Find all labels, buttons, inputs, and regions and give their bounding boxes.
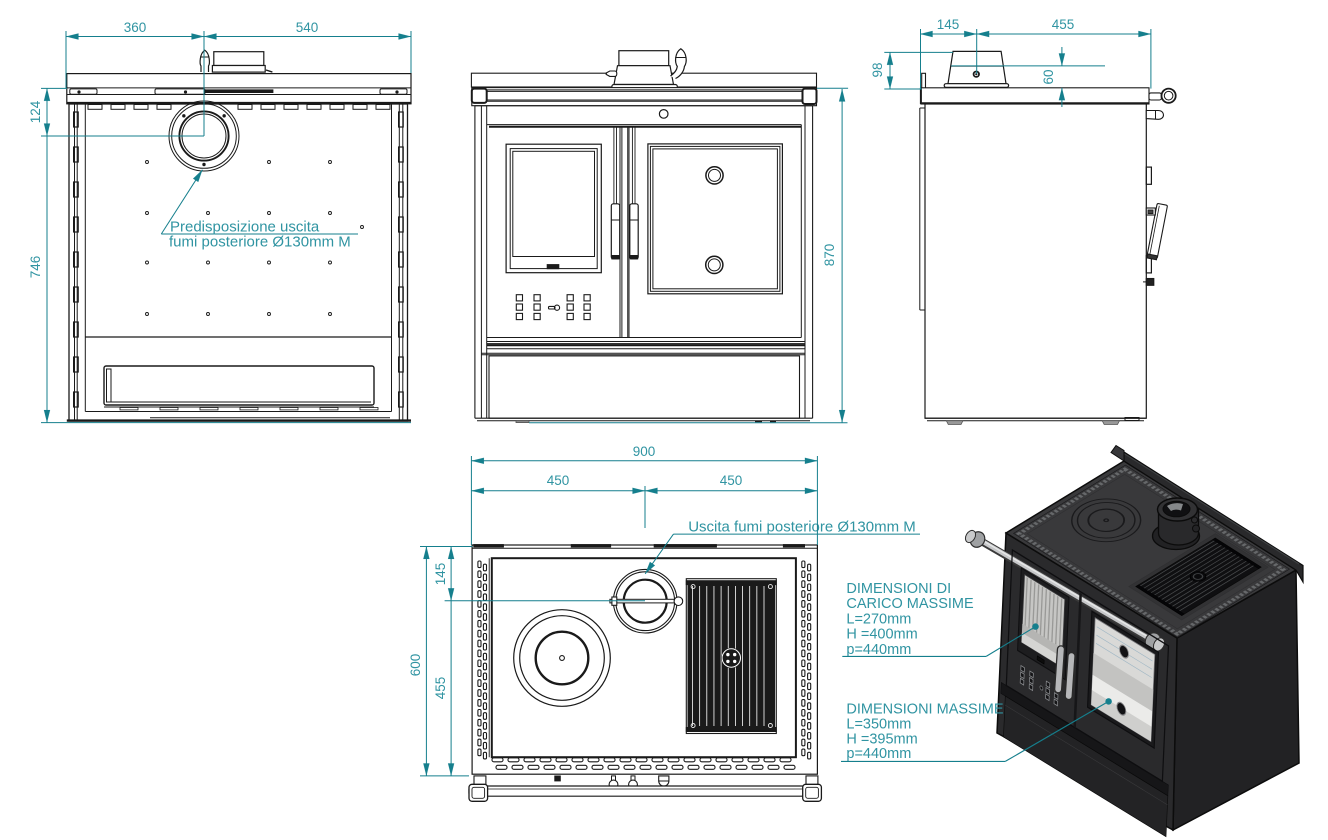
svg-text:450: 450 xyxy=(720,473,743,488)
svg-text:DIMENSIONI DI: DIMENSIONI DI xyxy=(846,581,951,597)
svg-text:p=440mm: p=440mm xyxy=(846,746,911,762)
svg-text:455: 455 xyxy=(1052,17,1075,32)
svg-text:900: 900 xyxy=(633,444,656,459)
svg-text:600: 600 xyxy=(408,654,423,677)
svg-text:98: 98 xyxy=(870,62,885,77)
svg-text:360: 360 xyxy=(124,20,147,35)
svg-text:450: 450 xyxy=(547,473,570,488)
svg-text:L=270mm: L=270mm xyxy=(846,611,911,627)
svg-text:CARICO MASSIME: CARICO MASSIME xyxy=(846,596,974,612)
svg-text:L=350mm: L=350mm xyxy=(846,717,911,733)
svg-text:p=440mm: p=440mm xyxy=(846,642,911,658)
svg-text:fumi posteriore Ø130mm M: fumi posteriore Ø130mm M xyxy=(169,234,351,251)
svg-text:540: 540 xyxy=(296,20,319,35)
svg-text:746: 746 xyxy=(28,256,43,279)
svg-text:H =400mm: H =400mm xyxy=(846,627,917,643)
svg-text:60: 60 xyxy=(1041,69,1056,84)
svg-text:455: 455 xyxy=(433,677,448,700)
svg-text:145: 145 xyxy=(937,17,960,32)
svg-text:DIMENSIONI MASSIME: DIMENSIONI MASSIME xyxy=(846,701,1003,717)
svg-text:870: 870 xyxy=(822,244,837,267)
svg-text:124: 124 xyxy=(28,100,43,123)
svg-text:Uscita fumi posteriore Ø130mm: Uscita fumi posteriore Ø130mm M xyxy=(688,519,916,536)
svg-text:145: 145 xyxy=(433,563,448,586)
